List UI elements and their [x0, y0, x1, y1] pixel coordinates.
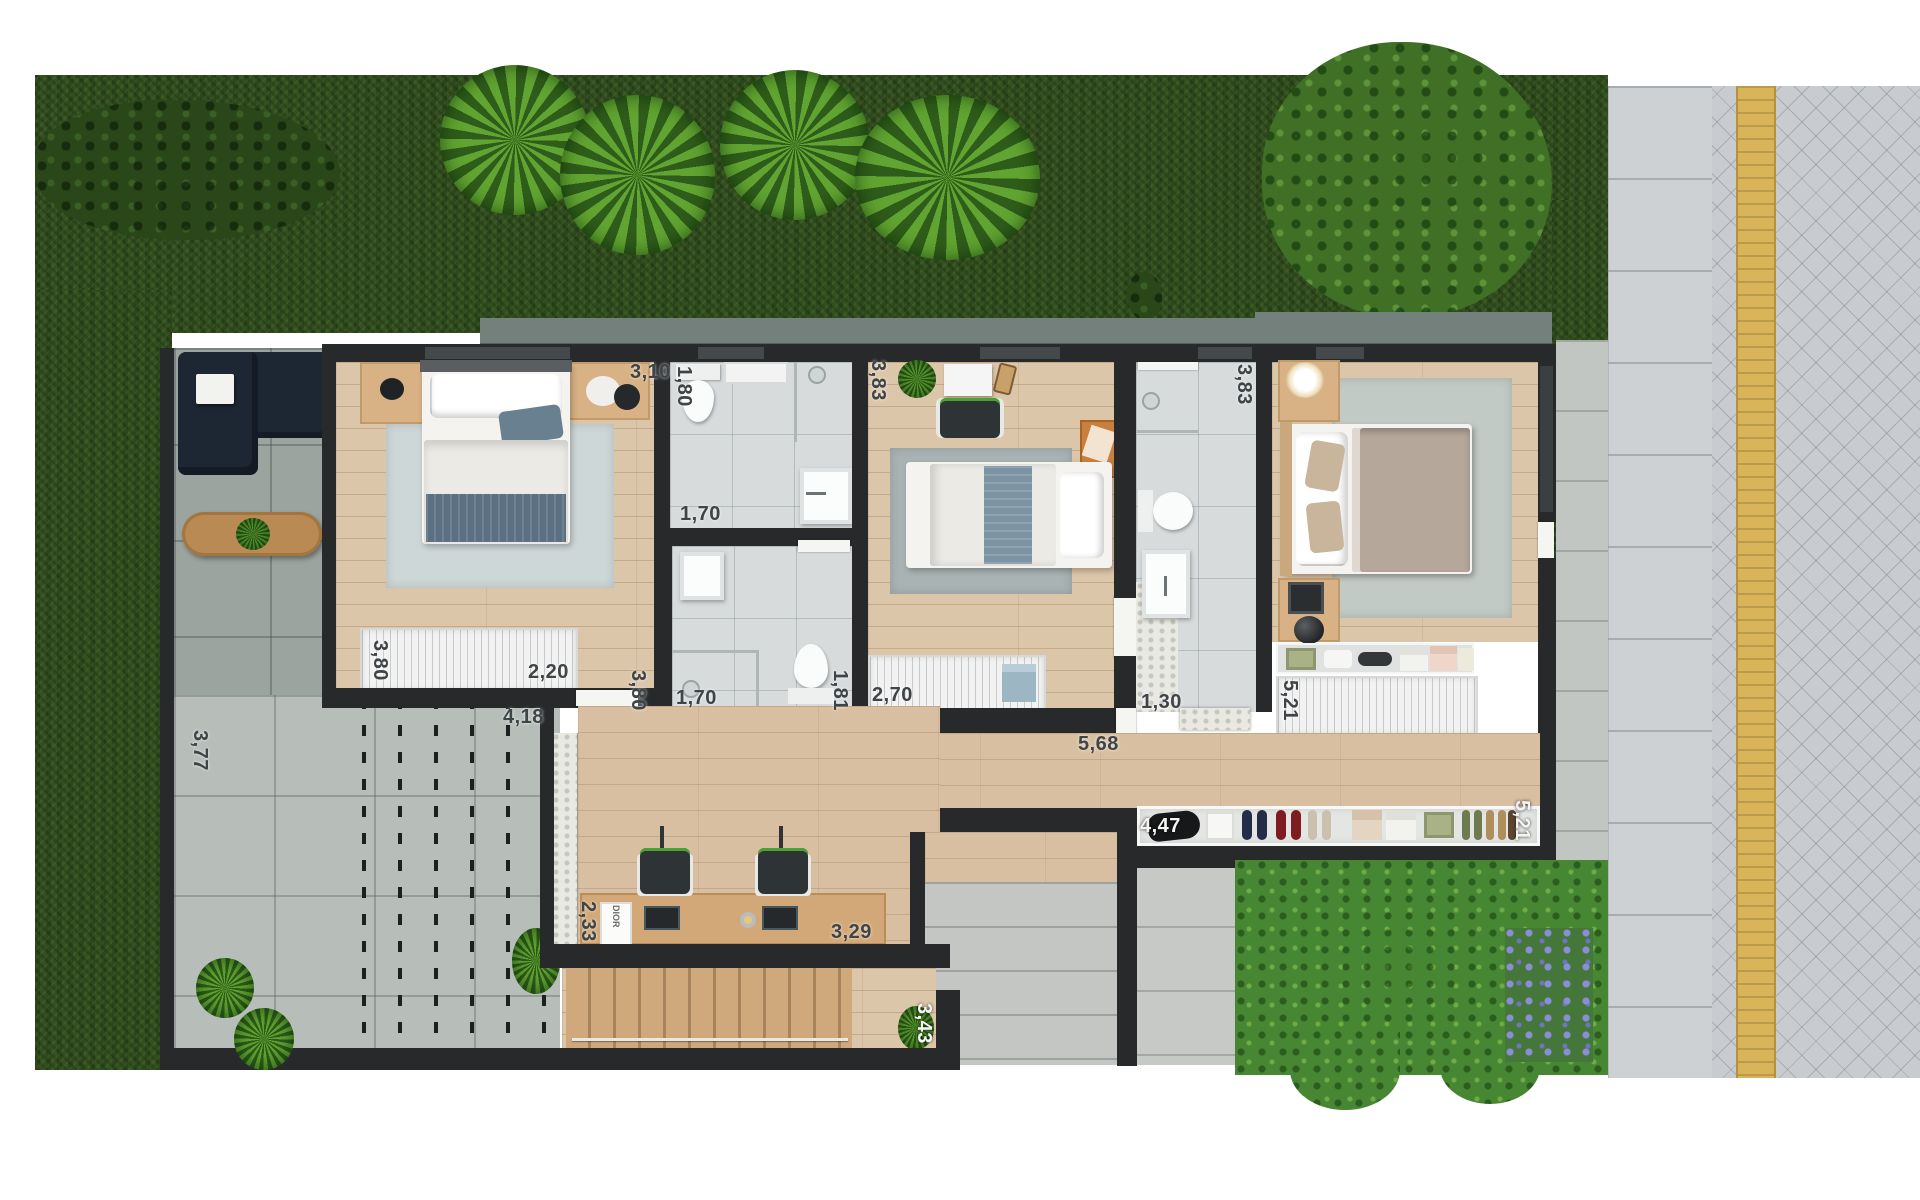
bedroom3-headboard	[1280, 422, 1292, 576]
wall-bed2-bathB	[1114, 348, 1136, 598]
office-chair-2	[758, 848, 808, 894]
dim-deck-width: 4,18	[503, 707, 544, 727]
wall-entry-right	[1117, 832, 1137, 1066]
bedroom2-desk	[944, 364, 992, 396]
dim-bath-a-length: 1,70	[680, 504, 721, 524]
bedroom2-chair	[940, 398, 1000, 438]
tropical-plant-2	[560, 95, 715, 255]
dim-wardrobe-width: 2,20	[528, 662, 569, 682]
dim-bedroom1-wardrobe: 3,80	[370, 640, 390, 681]
wall-stairs-right	[936, 990, 960, 1070]
entry-green-box	[1424, 812, 1454, 838]
bedroom2-wardrobe-stack	[1002, 664, 1036, 702]
shoes-green	[1462, 810, 1470, 840]
window-bath-a	[698, 347, 764, 359]
dim-office-depth: 2,33	[578, 901, 598, 942]
bath-a-shower-head	[810, 368, 824, 382]
patio-plant-1	[196, 958, 254, 1018]
office-monitor-1	[660, 826, 664, 850]
closet-white-item	[1324, 650, 1352, 668]
shoes-navy	[1242, 810, 1252, 840]
bath-a-shower-glass	[794, 362, 797, 442]
wall-bathB-bed3	[1256, 348, 1272, 712]
office-mouse	[740, 912, 756, 928]
bedroom2-plant	[898, 360, 936, 398]
bedroom2-pillow	[1060, 472, 1104, 558]
patio-plant-2	[234, 1008, 294, 1070]
dim-bath-c-length: 1,70	[676, 688, 717, 708]
window-bath-b	[1198, 347, 1252, 359]
window-bedroom1	[425, 347, 570, 359]
bedroom1-lamp	[380, 378, 404, 400]
bath-c-toilet-tank	[788, 688, 834, 704]
shoes-red	[1276, 810, 1286, 840]
bath-c-toilet-bowl	[794, 644, 828, 688]
dim-bedroom1-depth: 3,80	[628, 670, 648, 711]
dim-right-side-depth: 5,21	[1512, 800, 1532, 841]
bedroom1-bowl	[614, 384, 640, 410]
bedroom1-blue-throw	[426, 494, 566, 542]
dim-bath-c-width: 1,81	[830, 670, 850, 711]
closet-towels-top	[1458, 648, 1474, 671]
walkway-right	[1556, 340, 1608, 868]
bath-c-shower-glass-h	[672, 650, 758, 653]
table-plant-bowl	[236, 518, 270, 550]
dior-box-label: DIOR	[611, 905, 621, 937]
hedge-top-left	[35, 100, 340, 240]
bedroom2-blue-blanket	[984, 466, 1032, 564]
bath-c-shower-glass-v	[756, 650, 759, 708]
closet-towels-white	[1400, 647, 1428, 671]
sidewalk-slabs	[1608, 86, 1712, 1078]
grass-left-column	[35, 290, 172, 1070]
office-keyboard-1	[644, 906, 680, 930]
window-bedroom3	[1316, 347, 1364, 359]
office-dior-box: DIOR	[600, 902, 632, 946]
tropical-plant-3	[720, 70, 870, 220]
window-bedroom2	[980, 347, 1060, 359]
wall-bottom-left	[160, 1048, 560, 1070]
bath-b-shower-glass	[1136, 430, 1198, 433]
wall-hall-bottom	[940, 808, 1140, 832]
bath-b-mat	[1180, 708, 1250, 730]
window-bedroom3-side	[1540, 366, 1553, 512]
wall-stairs-top	[540, 944, 950, 968]
office-chair-1	[640, 848, 690, 894]
bath-b-toilet-bowl	[1153, 492, 1193, 530]
dim-office-width: 3,29	[831, 922, 872, 942]
dim-bath-b-depth: 3,83	[1234, 364, 1254, 405]
gravel-strip	[552, 733, 578, 952]
closet-green-box	[1286, 648, 1316, 670]
dim-closet-depth: 5,21	[1280, 680, 1300, 721]
dim-bedroom1-width: 3,10	[630, 362, 671, 382]
roof-fascia-right	[1255, 312, 1552, 346]
bath-c-sink	[680, 552, 724, 600]
office-keyboard-2	[762, 906, 798, 930]
hall-floor	[860, 733, 1540, 808]
bedroom3-control-panel	[1288, 582, 1324, 614]
bath-a-faucet	[806, 492, 826, 495]
stairs-handrail	[572, 1038, 848, 1041]
dim-bath-a-width: 1,80	[674, 366, 694, 407]
closet-drawers	[1276, 676, 1478, 736]
bedroom1-headboard	[420, 360, 572, 372]
entry-towel-beige	[1352, 810, 1382, 840]
bath-b-faucet	[1164, 576, 1167, 596]
terrace-sofa-chaise	[178, 352, 258, 475]
dim-bath-b-width: 1,30	[1141, 692, 1182, 712]
vine-small	[1128, 272, 1162, 320]
door-bath-c	[798, 540, 850, 552]
bath-a-vanity	[724, 362, 788, 384]
door-bedroom3-garden	[1538, 522, 1554, 558]
entry-vestibule-floor	[925, 832, 1117, 882]
dim-entry-closet-width: 4,47	[1140, 816, 1181, 836]
dim-hall-length: 5,68	[1078, 734, 1119, 754]
office-monitor-2	[779, 826, 783, 850]
floor-plan-render: DIOR 3,10 1,80 1,70 3,83 1,70 1,81 3,80 …	[0, 0, 1920, 1200]
wall-left-outer	[160, 348, 174, 1070]
sofa-book	[196, 374, 234, 404]
stairs-treads	[566, 968, 852, 1048]
bush-fringe-1	[1290, 1030, 1400, 1110]
entry-white-box	[1206, 812, 1234, 840]
wall-bedroom1-left	[322, 348, 336, 700]
dim-stair-width: 3,43	[914, 1003, 934, 1044]
closet-towels-pink	[1430, 646, 1457, 671]
tactile-paving-strip	[1736, 86, 1776, 1078]
deck-area	[356, 698, 556, 1048]
bath-b-shower-head	[1144, 394, 1158, 408]
bedroom3-sphere-decor	[1294, 616, 1324, 644]
flower-patch-purple	[1505, 928, 1593, 1062]
bedroom3-lamp-glow	[1286, 362, 1324, 398]
shoes-tan	[1486, 810, 1494, 840]
bedroom3-accent-pillow-2	[1305, 500, 1344, 553]
wall-stairs-bottom	[536, 1048, 960, 1070]
dim-bedroom2-wardrobe: 2,70	[872, 685, 913, 705]
closet-clutch	[1358, 652, 1392, 666]
wall-bathA-bed2	[852, 348, 868, 708]
bath-a-sink	[800, 468, 852, 524]
door-bedroom2	[1114, 596, 1136, 658]
dim-bedroom2-width: 3,83	[868, 360, 888, 401]
tree-top-right	[1262, 42, 1552, 318]
bedroom3-duvet	[1352, 428, 1470, 572]
shoes-beige	[1308, 810, 1317, 840]
entry-towel-white	[1386, 810, 1416, 840]
side-paving	[1137, 862, 1242, 1065]
wall-bathC-left	[654, 546, 672, 708]
wall-bed2-bathB-low	[1114, 656, 1136, 712]
bath-b-shower-door	[1138, 362, 1198, 370]
dim-patio-depth: 3,77	[190, 730, 210, 771]
bath-b-toilet-tank	[1138, 490, 1153, 532]
tropical-plant-4	[855, 95, 1040, 260]
wall-right-lower	[1538, 558, 1556, 868]
